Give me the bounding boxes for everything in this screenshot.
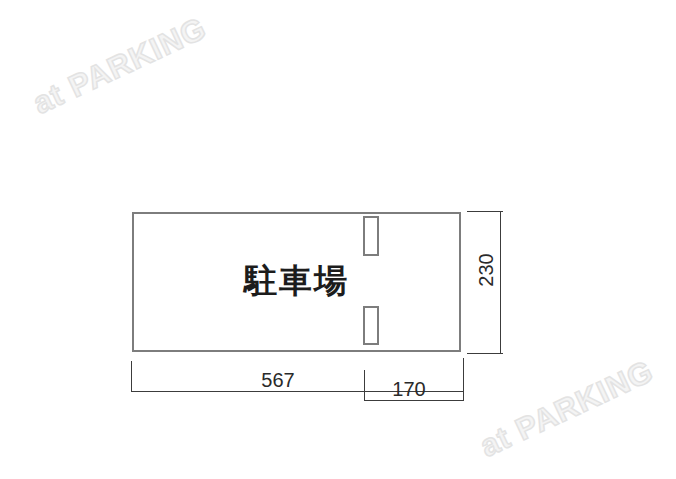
watermark-top-left: at PARKING xyxy=(13,3,228,129)
dimension-entrance-extension-left xyxy=(364,370,365,401)
dimension-width-extension-left xyxy=(131,361,132,392)
dimension-depth-tick-bottom xyxy=(467,353,503,354)
parking-lot-diagram: at PARKING at PARKING 駐車場 567 170 230 xyxy=(0,0,676,479)
dimension-entrance-value: 170 xyxy=(379,379,439,399)
dimension-depth-tick-top xyxy=(467,211,503,212)
parking-lot-label: 駐車場 xyxy=(134,259,459,304)
watermark-bottom-right: at PARKING xyxy=(460,346,675,472)
dimension-depth-line xyxy=(500,211,501,354)
dimension-right-extension xyxy=(463,358,464,401)
entrance-marker-top xyxy=(363,216,379,256)
parking-lot-outline: 駐車場 xyxy=(132,212,461,352)
dimension-entrance-line xyxy=(364,400,464,401)
dimension-depth-value: 230 xyxy=(476,240,496,300)
entrance-marker-bottom xyxy=(363,306,379,345)
dimension-width-value: 567 xyxy=(248,370,308,390)
